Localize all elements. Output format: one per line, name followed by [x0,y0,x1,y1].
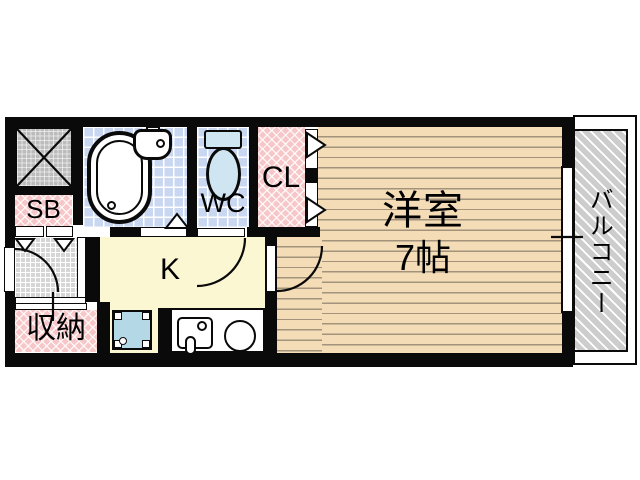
closet-label: CL [258,162,304,194]
pan-drain [119,337,127,345]
western-room-size-label: 7帖 [333,239,513,277]
wall-entrance-stub [86,237,100,302]
wc-door-leaf [197,228,245,237]
wall-under-bath [110,227,140,237]
western-room-nook-floor [277,237,322,353]
balcony-window [561,166,574,313]
wall-bath-wc-foot [187,227,197,237]
entrance-door-leaf [4,247,15,292]
bathroom-door-opening [140,227,187,237]
bathtub-drain [107,201,116,210]
pan-corner-br [142,340,150,348]
wall-left [5,117,15,367]
toilet-label: WC [195,189,251,217]
room-door-leaf [266,245,276,292]
pipe-shaft-area [15,127,73,188]
pan-corner-tl [114,312,122,320]
shoebox-door-right [46,226,73,237]
stove-burner-icon [224,320,256,352]
wall-right-lower [562,312,573,353]
storage-door-lower [15,303,87,310]
kitchen-label: K [155,254,185,286]
closet-door-divider [305,168,318,183]
storage-label: 収納 [17,313,95,345]
pan-corner-tr [142,312,150,320]
entrance-floor [15,237,77,298]
washbasin-icon [133,129,172,160]
wall-shaft-bath [73,127,83,225]
wall-under-closet [247,227,320,237]
entrance-step-board [77,237,86,302]
wall-bottom [5,353,573,367]
shoebox-door-left [15,226,44,237]
wall-right-upper [562,127,573,167]
floor-plan: SB WC CL 洋室 7帖 K 収納 バルコニー [0,0,640,480]
wall-storage-right [97,302,110,353]
shoe-box-label: SB [15,196,72,223]
western-room-name-label: 洋室 [333,190,513,232]
sink-faucet-dot [197,321,207,331]
wall-counter-stub [158,308,170,353]
washbasin-tap-dot [156,139,165,148]
balcony-label: バルコニー [586,172,611,332]
wall-top [5,117,573,127]
